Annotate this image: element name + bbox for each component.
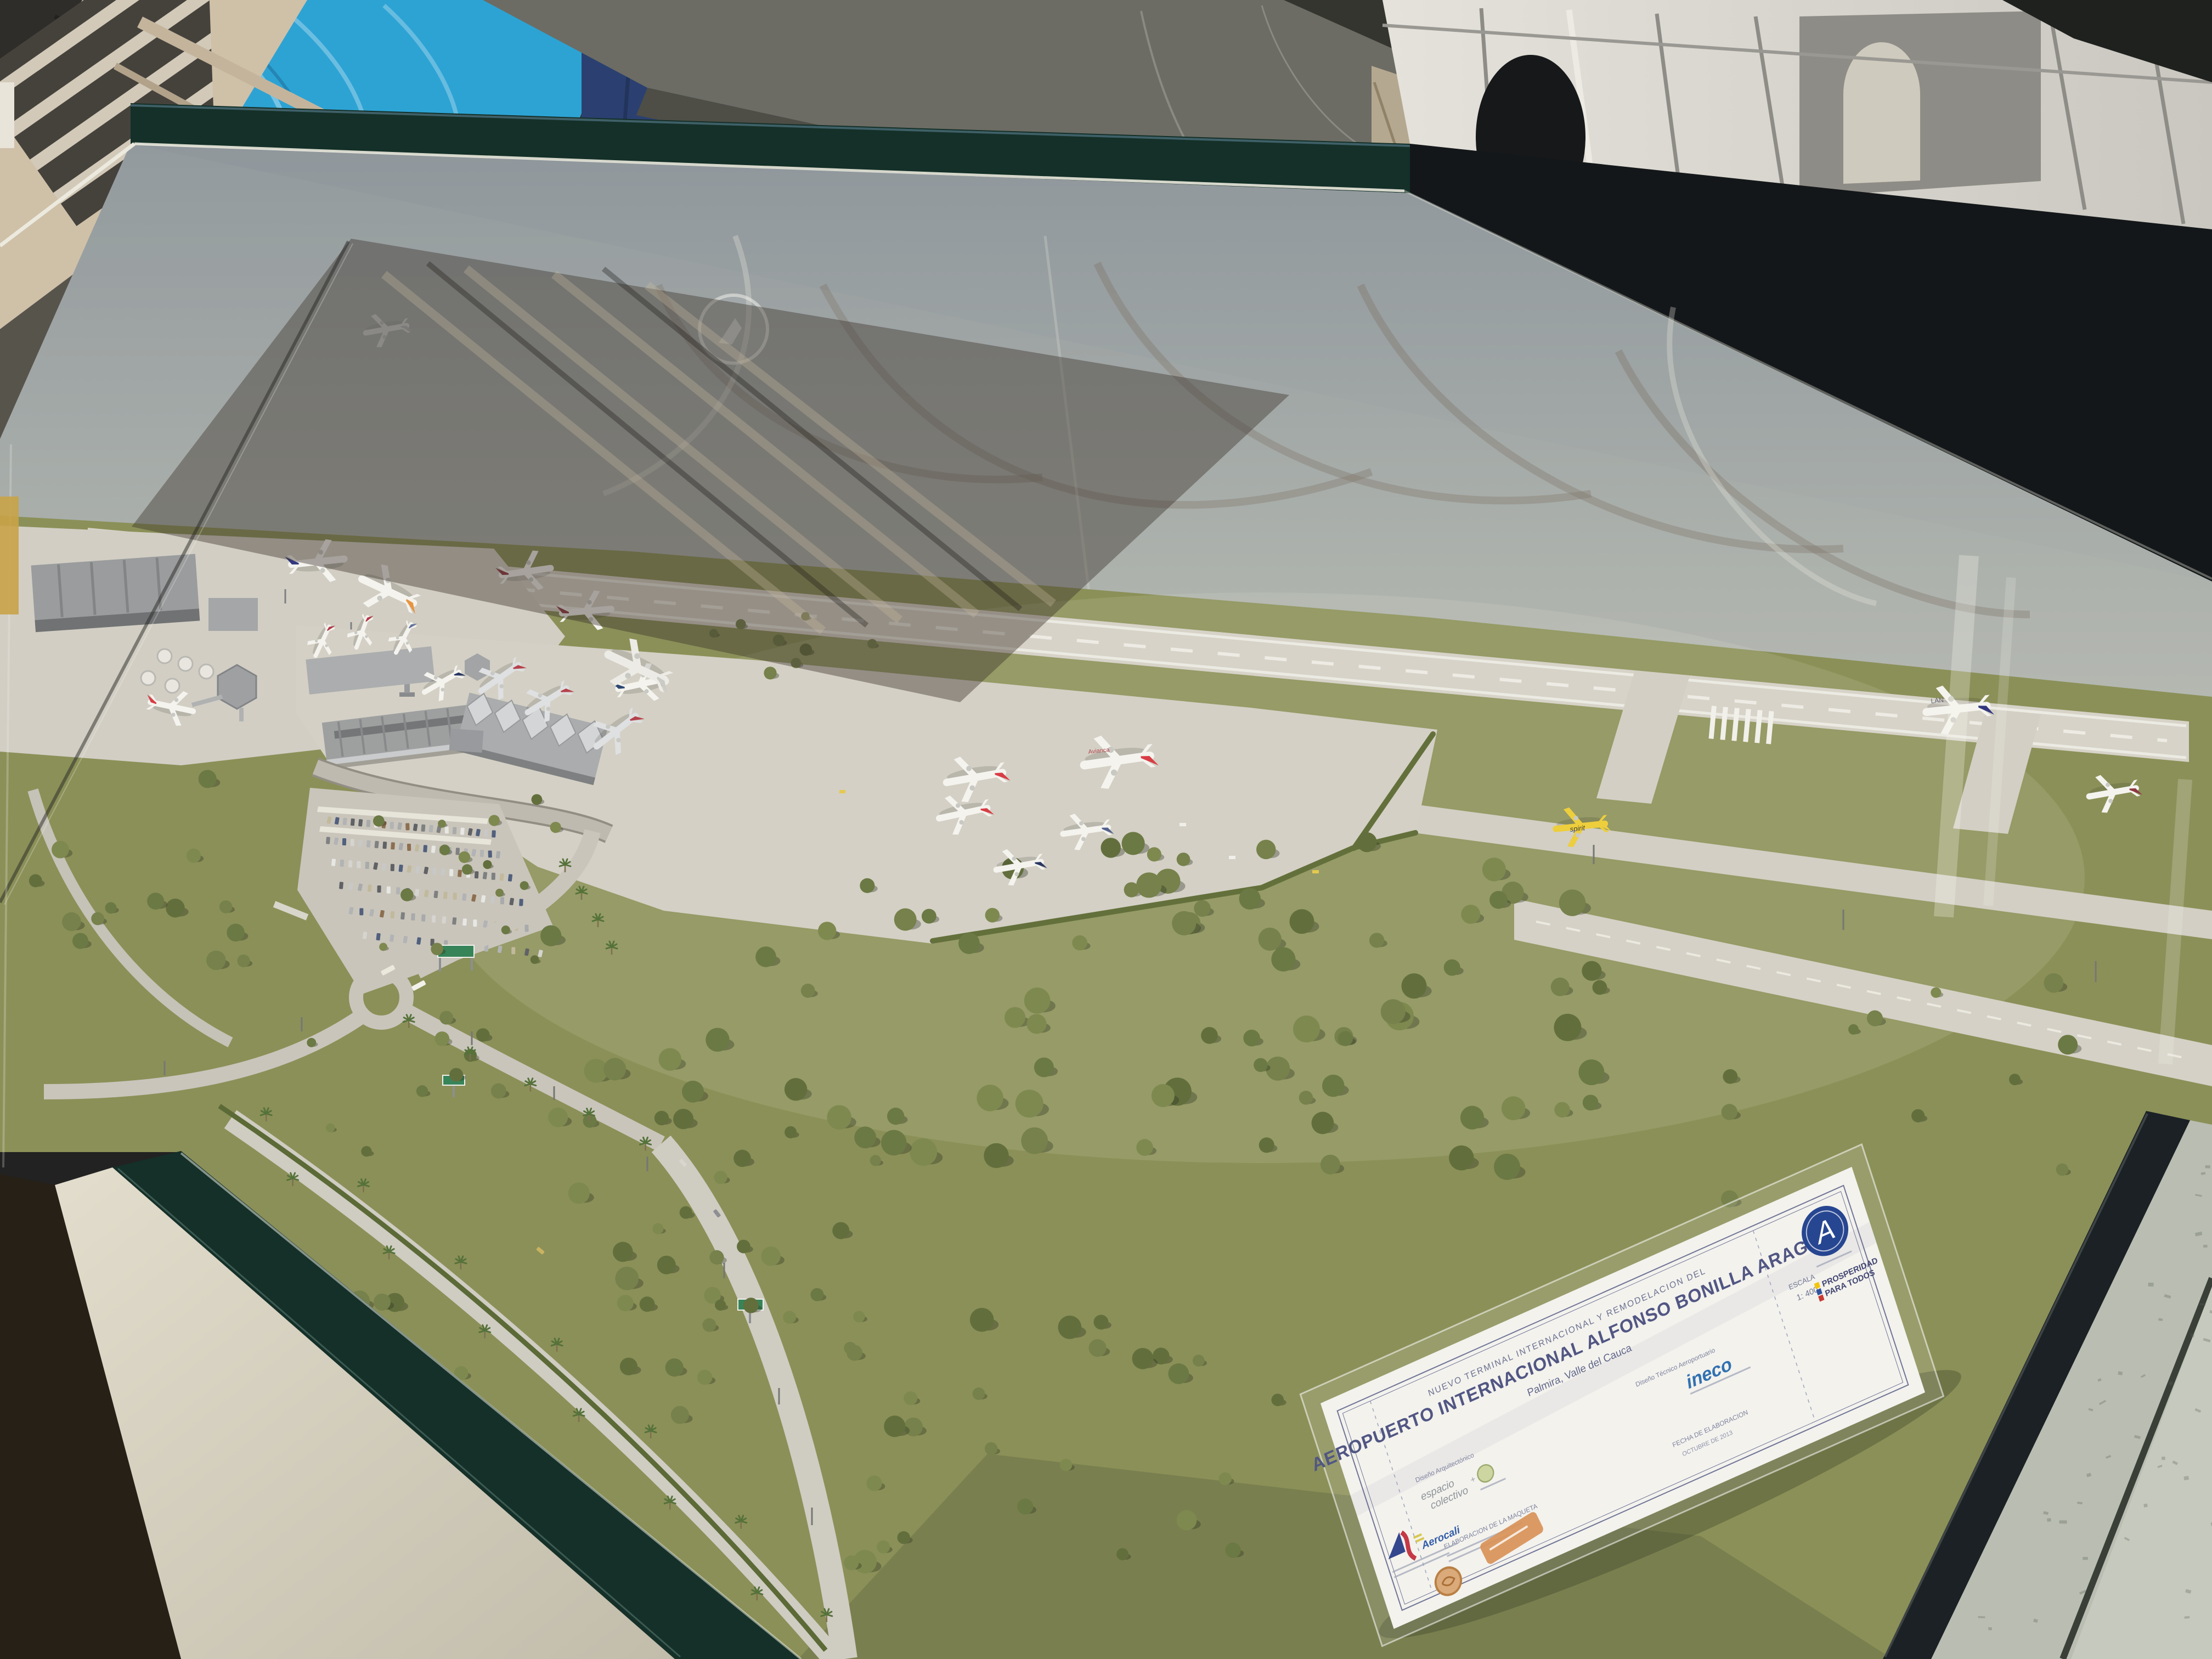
dust-speck <box>2183 1476 2189 1480</box>
dust-speck <box>2083 1557 2088 1560</box>
yellow-sliver <box>0 496 19 614</box>
dust-speck <box>2047 1518 2051 1522</box>
arch-niche <box>1843 42 1920 184</box>
wall-sliver <box>0 82 14 148</box>
dust-speck <box>2162 1457 2165 1460</box>
dust-speck <box>2148 1283 2154 1286</box>
dust-speck <box>2203 1245 2208 1248</box>
dust-speck <box>2190 1333 2194 1338</box>
dust-speck <box>1988 1627 1992 1630</box>
dust-speck <box>2205 1165 2210 1169</box>
dust-speck <box>2059 1520 2067 1523</box>
photo-of-airport-scale-model: spirit LAN Avianca NUEVO TERMINAL INTERN… <box>0 0 2212 1659</box>
dust-speck <box>1978 1616 1985 1618</box>
dust-speck <box>2143 1504 2148 1508</box>
